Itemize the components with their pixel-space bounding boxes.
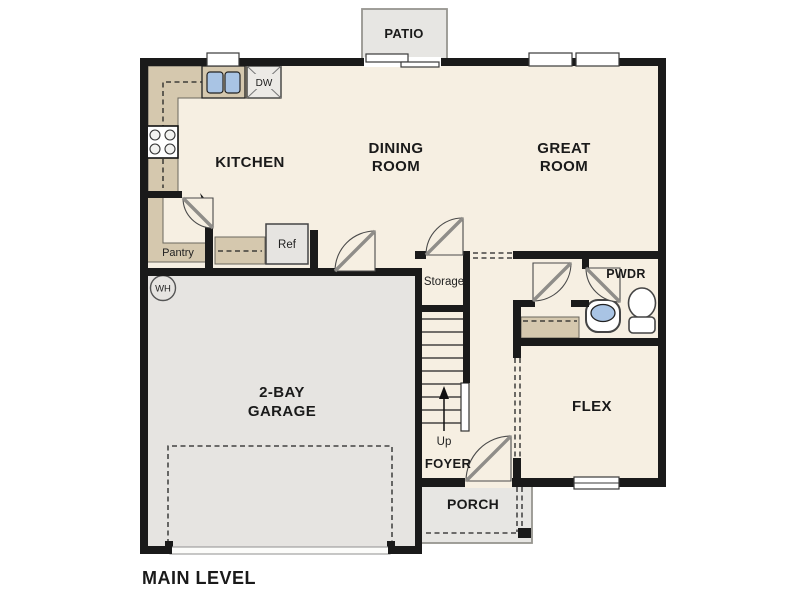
pantry-label: Pantry bbox=[162, 247, 194, 259]
greatroom-label-line2: ROOM bbox=[540, 158, 588, 175]
garage-label-line1: 2-BAY bbox=[259, 384, 305, 401]
closet-shelf bbox=[521, 317, 579, 338]
patio-slider-panel bbox=[401, 62, 439, 67]
wall-exterior-bottom bbox=[415, 478, 666, 487]
porch-post bbox=[518, 528, 531, 538]
stove-burner bbox=[150, 144, 160, 154]
wall-pwdr-flex bbox=[513, 338, 666, 346]
greatroom-window bbox=[529, 53, 572, 66]
sink-basin bbox=[591, 305, 615, 322]
storage-label: Storage bbox=[424, 276, 464, 288]
greatroom-label-line1: GREAT bbox=[537, 140, 590, 157]
porch-area: PORCH bbox=[421, 481, 532, 543]
kitchen-label: KITCHEN bbox=[215, 154, 284, 171]
plan-title: MAIN LEVEL bbox=[142, 568, 256, 588]
wall-exterior-right bbox=[658, 58, 666, 487]
wall-storage-stub-left bbox=[415, 251, 426, 259]
wall-flex-stub bbox=[513, 458, 521, 487]
dining-label-line2: ROOM bbox=[372, 158, 420, 175]
kitchen-window bbox=[207, 53, 239, 66]
patio-label: PATIO bbox=[384, 26, 423, 41]
water-heater-icon: WH bbox=[151, 276, 176, 301]
toilet-tank-icon bbox=[629, 317, 655, 333]
kitchen-sink-icon bbox=[225, 72, 240, 93]
up-label: Up bbox=[437, 436, 452, 448]
stove-burner bbox=[165, 130, 175, 140]
wall-exterior-left bbox=[140, 58, 148, 554]
greatroom-window bbox=[576, 53, 619, 66]
wall-garage-right bbox=[415, 268, 422, 554]
stove-burner bbox=[150, 130, 160, 140]
wall-fridge-stub bbox=[310, 230, 318, 272]
toilet-bowl-icon bbox=[629, 288, 656, 318]
wall-pantry-stub bbox=[148, 191, 182, 198]
refrigerator-label: Ref bbox=[278, 239, 297, 251]
garage-door-panel bbox=[170, 547, 390, 554]
floorplan-canvas: PATIO PORCH DW Pantry Ref bbox=[0, 0, 800, 600]
wall-kitchen-garage bbox=[140, 268, 420, 276]
stair-railing bbox=[461, 383, 469, 431]
dining-label-line1: DINING bbox=[369, 140, 424, 157]
wall-greatroom-south bbox=[513, 251, 658, 259]
floorplan-drawing: PATIO PORCH DW Pantry Ref bbox=[0, 0, 800, 600]
wall-closet-top-right bbox=[571, 300, 589, 307]
porch-slab bbox=[421, 481, 532, 543]
flex-label: FLEX bbox=[572, 398, 612, 415]
wall-garage-bottom-left bbox=[140, 546, 172, 554]
foyer-label: FOYER bbox=[425, 456, 472, 471]
garage-label-line2: GARAGE bbox=[248, 403, 316, 420]
stove-burner bbox=[165, 144, 175, 154]
porch-label: PORCH bbox=[447, 496, 499, 512]
refrigerator-icon: Ref bbox=[266, 224, 308, 264]
water-heater-label: WH bbox=[155, 284, 171, 295]
patio-slider-panel bbox=[366, 54, 408, 62]
kitchen-sink-icon bbox=[207, 72, 223, 93]
wall-storage-bottom bbox=[422, 305, 463, 312]
wall-closet-left bbox=[513, 300, 521, 358]
pwdr-label: PWDR bbox=[606, 267, 645, 281]
wall-stair-right bbox=[463, 251, 470, 383]
dishwasher-label: DW bbox=[256, 78, 273, 89]
